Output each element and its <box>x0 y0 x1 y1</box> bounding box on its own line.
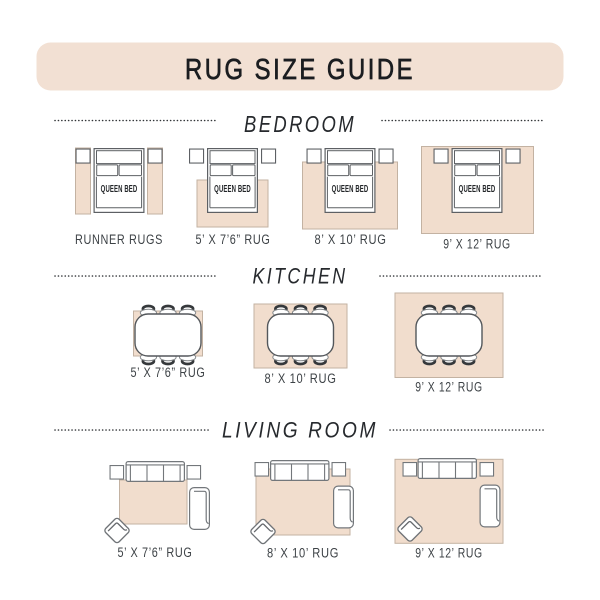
svg-text:9’ X 12’ RUG: 9’ X 12’ RUG <box>415 380 483 395</box>
svg-text:9’ X 12’ RUG: 9’ X 12’ RUG <box>415 546 483 561</box>
svg-text:BEDROOM: BEDROOM <box>244 111 356 137</box>
svg-text:8’ X 10’ RUG: 8’ X 10’ RUG <box>265 371 337 386</box>
svg-text:LIVING ROOM: LIVING ROOM <box>222 418 378 443</box>
svg-text:RUG SIZE GUIDE: RUG SIZE GUIDE <box>185 54 415 86</box>
svg-text:KITCHEN: KITCHEN <box>253 264 348 289</box>
svg-text:RUNNER RUGS: RUNNER RUGS <box>75 232 163 247</box>
svg-text:5’ X 7’6” RUG: 5’ X 7’6” RUG <box>131 365 206 380</box>
svg-text:9’ X 12’ RUG: 9’ X 12’ RUG <box>443 237 511 252</box>
svg-text:5’ X 7’6” RUG: 5’ X 7’6” RUG <box>118 545 193 560</box>
svg-text:8’ X 10’ RUG: 8’ X 10’ RUG <box>315 232 387 247</box>
svg-text:5’ X 7’6” RUG: 5’ X 7’6” RUG <box>196 232 271 247</box>
svg-text:8’ X 10’ RUG: 8’ X 10’ RUG <box>267 546 339 561</box>
